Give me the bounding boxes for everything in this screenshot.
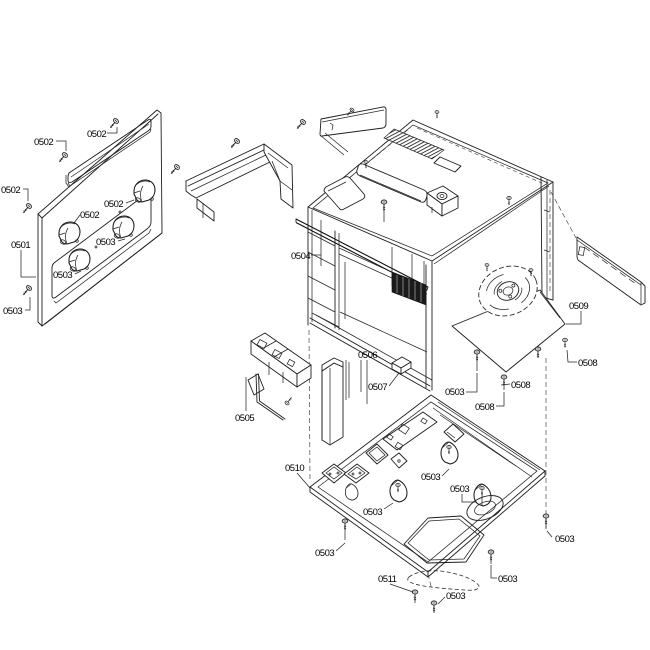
svg-text:0502: 0502 [87, 129, 106, 140]
svg-text:0503: 0503 [421, 472, 440, 483]
svg-text:0503: 0503 [450, 484, 469, 495]
svg-text:0503: 0503 [363, 507, 382, 518]
svg-text:0503: 0503 [498, 574, 517, 585]
svg-text:0508: 0508 [578, 358, 597, 369]
svg-text:0505: 0505 [235, 413, 254, 424]
svg-text:0502: 0502 [1, 185, 20, 196]
svg-text:0510: 0510 [285, 463, 304, 474]
svg-text:0511: 0511 [378, 574, 397, 585]
svg-text:0503: 0503 [446, 591, 465, 602]
svg-text:0508: 0508 [511, 380, 530, 391]
svg-text:0502: 0502 [104, 199, 123, 210]
svg-text:0509: 0509 [569, 301, 588, 312]
svg-text:0503: 0503 [3, 306, 22, 317]
svg-text:0506: 0506 [358, 350, 377, 361]
svg-text:0501: 0501 [11, 240, 30, 251]
svg-text:0502: 0502 [34, 137, 53, 148]
svg-text:0507: 0507 [368, 382, 387, 393]
svg-text:0502: 0502 [80, 210, 99, 221]
svg-text:0508: 0508 [475, 402, 494, 413]
svg-text:0503: 0503 [445, 387, 464, 398]
svg-text:0503: 0503 [96, 237, 115, 248]
svg-text:0504: 0504 [291, 251, 310, 262]
svg-text:0503: 0503 [53, 270, 72, 281]
svg-text:0503: 0503 [315, 548, 334, 559]
svg-text:0503: 0503 [555, 534, 574, 545]
